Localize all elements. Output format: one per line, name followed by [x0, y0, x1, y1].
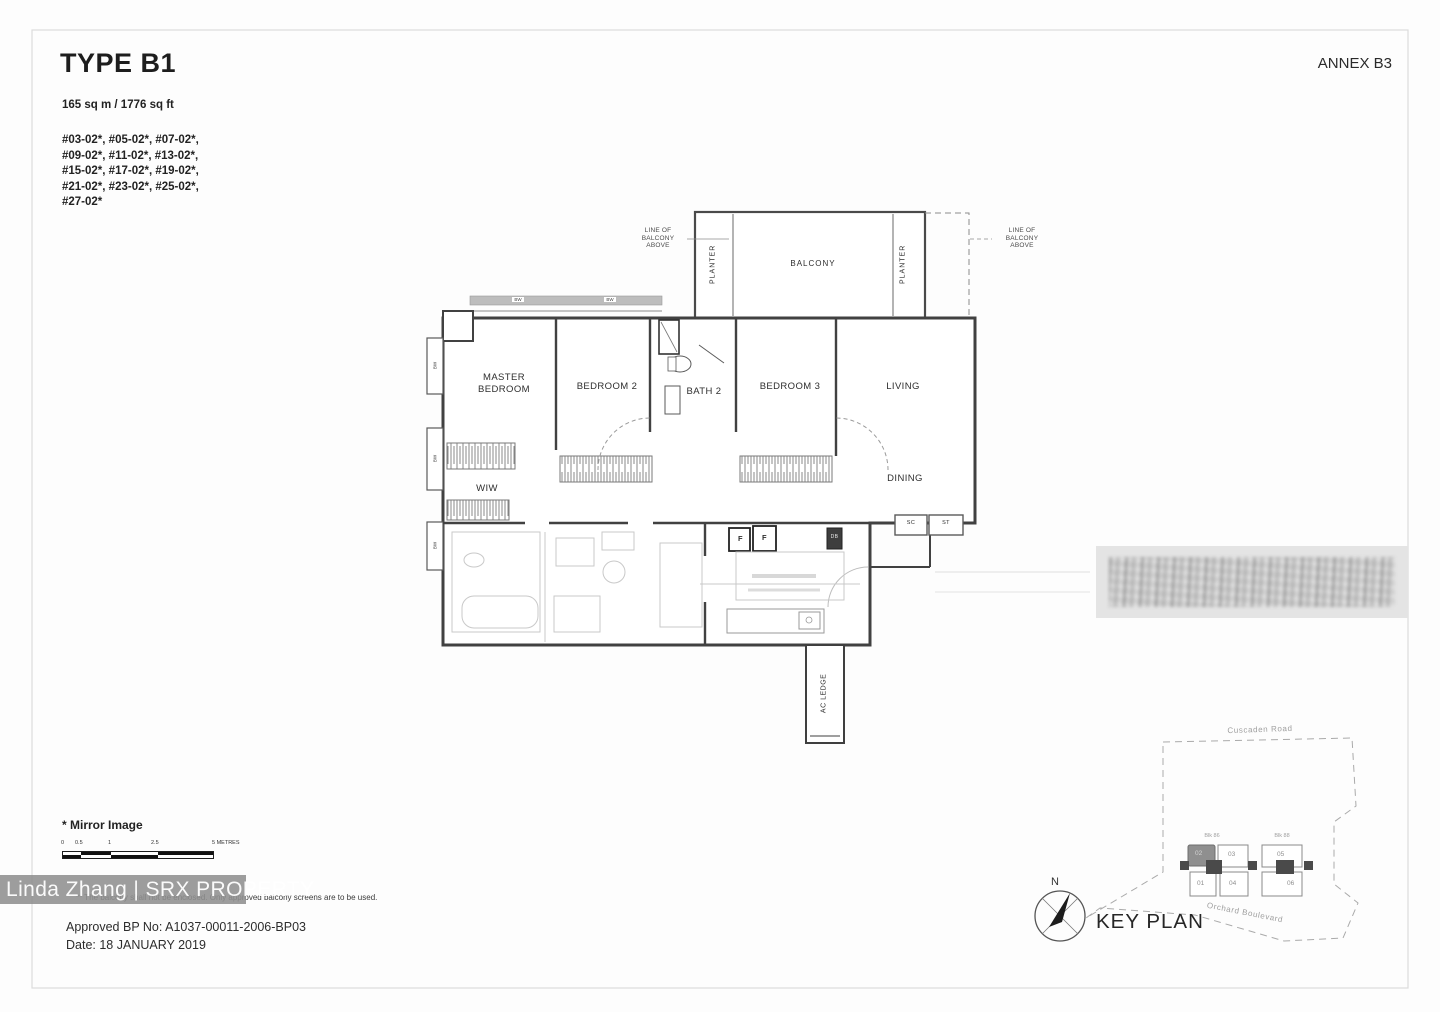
scale-tick-25: 2.5	[151, 840, 159, 846]
scale-tick-1: 1	[108, 840, 111, 846]
compass-north-label: N	[1047, 876, 1063, 888]
watermark-text: Linda Zhang | SRX PROPERTY	[6, 878, 314, 902]
bw-label-left-3: BW	[432, 536, 439, 556]
floorplan-drawing	[0, 0, 1440, 1012]
line-of-balcony-above-right: LINE OF BALCONY ABOVE	[994, 227, 1050, 250]
fridge-label-2: F	[753, 533, 776, 542]
bw-label-top-1: BW	[508, 296, 528, 303]
unit-area: 165 sq m / 1776 sq ft	[62, 99, 174, 111]
room-bath-2: BATH 2	[676, 386, 732, 398]
room-wiw: WIW	[457, 483, 517, 495]
bw-label-top-2: BW	[600, 296, 620, 303]
balcony-label: BALCONY	[773, 259, 853, 269]
mirror-image-note: * Mirror Image	[62, 818, 143, 832]
room-dining: DINING	[865, 473, 945, 485]
keyplan-unit-02: 02	[1195, 850, 1202, 857]
keyplan-unit-01: 01	[1197, 880, 1204, 887]
line-of-balcony-above-left: LINE OF BALCONY ABOVE	[630, 227, 686, 250]
room-living: LIVING	[863, 381, 943, 393]
keyplan-unit-04: 04	[1229, 880, 1236, 887]
wardrobe-master	[447, 443, 515, 469]
scale-tick-0: 0	[61, 840, 64, 846]
bath2-cistern	[668, 357, 676, 371]
compass-needle	[1049, 893, 1070, 927]
compass	[1035, 891, 1085, 941]
keyplan-building-right	[1262, 845, 1313, 896]
planter-right-label: PLANTER	[900, 234, 909, 294]
keyplan-building-left	[1180, 845, 1257, 896]
bw-label-left-1: BW	[432, 356, 439, 376]
approval-date: Date: 18 JANUARY 2019	[66, 938, 206, 952]
wardrobe-bed3	[740, 456, 832, 482]
blk-label-left: Blk 86	[1192, 833, 1232, 839]
keyplan-unit-03: 03	[1228, 851, 1235, 858]
blk-label-right: Blk 88	[1262, 833, 1302, 839]
ac-ledge-label: AC LEDGE	[821, 653, 830, 733]
bw-label-left-2: BW	[432, 449, 439, 469]
fridge-label-1: F	[730, 534, 751, 543]
agent-watermark: Linda Zhang | SRX PROPERTY	[0, 875, 246, 904]
wardrobe-bed2	[560, 456, 652, 482]
scale-bar-rule	[62, 851, 214, 859]
corner-column	[443, 311, 473, 341]
room-bedroom-3: BEDROOM 3	[740, 381, 840, 393]
scale-tick-05: 0.5	[75, 840, 83, 846]
approved-bp-number: Approved BP No: A1037-00011-2006-BP03	[66, 920, 306, 934]
annex-label: ANNEX B3	[1260, 55, 1392, 72]
wardrobe-wiw	[447, 500, 509, 520]
db-label: DB	[827, 534, 842, 540]
floorplan-sheet: TYPE B1 ANNEX B3 165 sq m / 1776 sq ft #…	[0, 0, 1440, 1012]
unit-list: #03-02*, #05-02*, #07-02*, #09-02*, #11-…	[62, 133, 199, 211]
bay-window-band	[470, 296, 662, 305]
keyplan-unit-06: 06	[1287, 880, 1294, 887]
planter-left-label: PLANTER	[710, 234, 719, 294]
st-label: ST	[929, 520, 963, 527]
blurred-architect-stamp	[1096, 546, 1408, 618]
keyplan-title: KEY PLAN	[1096, 910, 1204, 934]
scale-unit-label: 5 METRES	[212, 840, 258, 846]
line-of-balcony-above-dashed	[925, 213, 969, 317]
sc-label: SC	[895, 520, 927, 527]
room-bedroom-2: BEDROOM 2	[557, 381, 657, 393]
page-title: TYPE B1	[60, 48, 176, 79]
room-master-bedroom: MASTER BEDROOM	[462, 372, 546, 396]
keyplan-unit-05: 05	[1277, 851, 1284, 858]
kitchen-sink	[799, 612, 820, 629]
